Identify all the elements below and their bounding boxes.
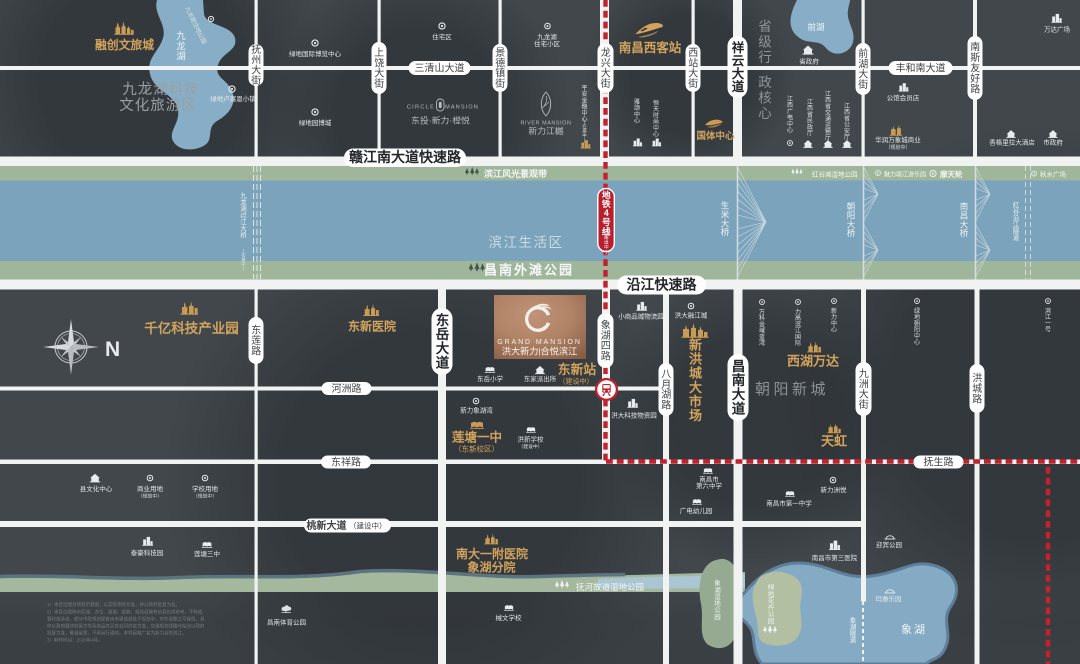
svg-text:东家派出所: 东家派出所 xyxy=(524,374,557,383)
svg-text:九龙湖: 九龙湖 xyxy=(176,30,186,63)
svg-text:力高滨江国际: 力高滨江国际 xyxy=(795,308,801,347)
svg-text:械文学校: 械文学校 xyxy=(496,613,523,622)
svg-text:象湖分院: 象湖分院 xyxy=(467,560,515,575)
svg-text:绿地园博城: 绿地园博城 xyxy=(299,118,332,127)
svg-text:万达广场: 万达广场 xyxy=(1044,25,1071,34)
svg-text:生米大桥: 生米大桥 xyxy=(721,201,730,238)
svg-text:西湖万达: 西湖万达 xyxy=(787,354,839,369)
svg-text:（规划中）: （规划中） xyxy=(885,144,910,151)
svg-text:省级行: 省级行 xyxy=(758,19,772,65)
svg-text:祥云大道: 祥云大道 xyxy=(732,40,745,94)
svg-text:（建设中）: （建设中） xyxy=(559,377,594,386)
svg-text:小商品城物流园: 小商品城物流园 xyxy=(618,312,664,321)
svg-text:象湖湿地公园: 象湖湿地公园 xyxy=(714,578,721,621)
svg-text:3）制作时间：2020年4月。: 3）制作时间：2020年4月。 xyxy=(47,637,103,644)
svg-text:抚生路: 抚生路 xyxy=(924,455,954,468)
svg-text:第六中学: 第六中学 xyxy=(696,481,723,490)
svg-text:东投·新力·樘悦: 东投·新力·樘悦 xyxy=(411,115,470,126)
svg-text:新力中心: 新力中心 xyxy=(831,307,837,334)
svg-text:象湖: 象湖 xyxy=(901,623,927,636)
svg-text:九龙湖科技: 九龙湖科技 xyxy=(122,81,200,98)
svg-text:江西广电中心: 江西广电中心 xyxy=(787,96,793,134)
svg-text:红谷滩湿地公园: 红谷滩湿地公园 xyxy=(812,170,858,179)
svg-text:上饶大街: 上饶大街 xyxy=(374,47,384,90)
svg-text:绿地朝阳中心: 绿地朝阳中心 xyxy=(914,307,920,346)
svg-text:文化旅游区: 文化旅游区 xyxy=(119,97,197,114)
svg-text:商业用地: 商业用地 xyxy=(137,484,164,493)
svg-text:东祥路: 东祥路 xyxy=(331,455,361,468)
svg-text:秋水广场: 秋水广场 xyxy=(1040,170,1067,179)
svg-text:玛雅乐园: 玛雅乐园 xyxy=(876,594,902,603)
svg-text:新力江樾: 新力江樾 xyxy=(528,125,563,136)
svg-text:滨江生活区: 滨江生活区 xyxy=(489,235,564,250)
svg-text:GRAND MANSION: GRAND MANSION xyxy=(497,339,582,346)
svg-text:新洪城大市场: 新洪城大市场 xyxy=(689,337,702,423)
svg-text:体以政府最终批复文件及商品房买卖合同约定为准，交通规划线路与: 体以政府最终批复文件及商品房买卖合同约定为准，交通规划线路与站点以政府 xyxy=(47,623,205,630)
svg-text:华润万象城商业: 华润万象城商业 xyxy=(875,135,921,144)
svg-text:广电幼儿园: 广电幼儿园 xyxy=(680,506,713,515)
svg-text:景德镇街: 景德镇街 xyxy=(495,47,505,90)
svg-text:（规划中）: （规划中） xyxy=(138,493,162,500)
svg-text:MANSION: MANSION xyxy=(445,105,479,111)
svg-text:莲塘一中: 莲塘一中 xyxy=(452,430,502,445)
svg-text:东岳小学: 东岳小学 xyxy=(477,374,504,383)
svg-text:住宅区: 住宅区 xyxy=(432,32,452,41)
svg-text:东莲路: 东莲路 xyxy=(251,324,261,358)
svg-text:千亿科技产业园: 千亿科技产业园 xyxy=(144,320,239,336)
svg-text:要约或承诺，部分市政规划配套尚未建成或处于规划中，存在调整之: 要约或承诺，部分市政规划配套尚未建成或处于规划中，存在调整之可能性，具 xyxy=(47,616,205,623)
svg-text:（建设中）: （建设中） xyxy=(519,443,543,450)
svg-text:绿地国际博览中心: 绿地国际博览中心 xyxy=(289,49,342,58)
svg-text:新力象湖湾: 新力象湖湾 xyxy=(460,406,493,415)
svg-text:象湖隧道: 象湖隧道 xyxy=(850,615,857,644)
svg-text:前湖: 前湖 xyxy=(807,22,824,32)
svg-text:省政府: 省政府 xyxy=(799,57,819,66)
svg-text:洪大科技物资园: 洪大科技物资园 xyxy=(611,411,657,420)
svg-text:（东新校区）: （东新校区） xyxy=(454,444,499,454)
svg-text:滨江风光景观带: 滨江风光景观带 xyxy=(484,168,547,179)
svg-text:东新站: 东新站 xyxy=(558,362,597,377)
svg-text:江西省公安厅: 江西省公安厅 xyxy=(844,103,850,141)
svg-text:2）本区位图所示区域、方位、距离、配套、规划设施等信息仅供参: 2）本区位图所示区域、方位、距离、配套、规划设施等信息仅供参考，不构成 xyxy=(47,609,203,616)
svg-text:县文化中心: 县文化中心 xyxy=(80,484,113,493)
svg-text:昌南体育公园: 昌南体育公园 xyxy=(267,618,306,627)
svg-text:抚州大街: 抚州大街 xyxy=(251,44,261,87)
svg-text:南昌大桥: 南昌大桥 xyxy=(960,202,969,239)
svg-text:恒天时尚中心: 恒天时尚中心 xyxy=(653,99,659,138)
svg-text:前湖大街: 前湖大街 xyxy=(858,47,868,91)
svg-text:迎宾公园: 迎宾公园 xyxy=(876,540,902,549)
svg-text:九龙湖过江大桥: 九龙湖过江大桥 xyxy=(240,191,247,239)
svg-text:南斯友好路: 南斯友好路 xyxy=(970,41,980,96)
svg-text:桃新大道: 桃新大道 xyxy=(307,519,347,532)
svg-text:1）本区位图为项目示意图，以实际测绘为准，并以政府批复为准。: 1）本区位图为项目示意图，以实际测绘为准，并以政府批复为准。 xyxy=(47,601,180,608)
svg-text:龙兴大街: 龙兴大街 xyxy=(601,46,611,90)
svg-text:朝阳大桥: 朝阳大桥 xyxy=(847,202,856,239)
svg-text:抚河故道湿地公园: 抚河故道湿地公园 xyxy=(576,582,644,592)
svg-text:九洲大街: 九洲大街 xyxy=(859,368,869,411)
svg-text:沿江快速路: 沿江快速路 xyxy=(627,277,698,293)
svg-text:魅力赣江游乐园: 魅力赣江游乐园 xyxy=(884,171,926,179)
svg-text:香格里拉大酒店: 香格里拉大酒店 xyxy=(989,138,1035,147)
svg-text:洪城路: 洪城路 xyxy=(972,373,982,406)
svg-text:绿地卢塞恩小镇: 绿地卢塞恩小镇 xyxy=(210,94,256,103)
svg-text:江西省民政厅: 江西省民政厅 xyxy=(807,99,813,137)
svg-text:南大一附医院: 南大一附医院 xyxy=(456,546,528,561)
svg-text:八月湖路: 八月湖路 xyxy=(661,369,671,411)
svg-text:江西省交通运输厅: 江西省交通运输厅 xyxy=(825,91,831,142)
svg-text:三清山大道: 三清山大道 xyxy=(415,62,465,75)
svg-text:学校用地: 学校用地 xyxy=(192,484,219,493)
svg-text:洪新学校: 洪新学校 xyxy=(518,435,545,444)
svg-text:滨江一号: 滨江一号 xyxy=(1045,307,1051,334)
svg-text:新力洲悦: 新力洲悦 xyxy=(821,485,848,494)
svg-text:赣江南大道快速路: 赣江南大道快速路 xyxy=(349,149,462,165)
svg-text:昌南大道: 昌南大道 xyxy=(732,359,746,416)
svg-text:政核心: 政核心 xyxy=(758,75,772,121)
svg-text:CIRCLE: CIRCLE xyxy=(407,105,435,111)
svg-text:融创文旅城: 融创文旅城 xyxy=(95,38,154,52)
svg-text:万科金域蓝湾: 万科金域蓝湾 xyxy=(759,309,765,347)
svg-text:（建设中）: （建设中） xyxy=(349,521,387,531)
svg-text:N: N xyxy=(105,338,120,361)
svg-text:住宅小区: 住宅小区 xyxy=(534,39,561,48)
svg-text:南昌市第一中学: 南昌市第一中学 xyxy=(766,499,812,508)
svg-text:公馆会员店: 公馆会员店 xyxy=(887,93,920,102)
svg-text:批复为准，敬请留意，不再另行通知。本项目推广名为新力合悦滨江: 批复为准，敬请留意，不再另行通知。本项目推广名为新力合悦滨江。 xyxy=(47,630,187,637)
svg-text:朝阳新城: 朝阳新城 xyxy=(755,381,829,398)
svg-text:昌南外滩公园: 昌南外滩公园 xyxy=(484,263,574,278)
svg-text:南昌西客站: 南昌西客站 xyxy=(619,40,682,55)
svg-text:摩天轮: 摩天轮 xyxy=(940,169,963,179)
svg-text:国体中心: 国体中心 xyxy=(696,130,735,142)
svg-text:东岳大道: 东岳大道 xyxy=(436,312,450,370)
svg-text:雅颂中心: 雅颂中心 xyxy=(634,98,640,125)
svg-text:莲塘三中: 莲塘三中 xyxy=(194,549,220,558)
svg-text:象湖四路: 象湖四路 xyxy=(601,319,611,362)
svg-text:洪大新力|合悦滨江: 洪大新力|合悦滨江 xyxy=(502,346,578,357)
svg-text:丰和南大道: 丰和南大道 xyxy=(896,62,946,75)
svg-text:红谷沿江隧道: 红谷沿江隧道 xyxy=(1013,200,1020,242)
svg-text:洪大融江城: 洪大融江城 xyxy=(675,311,708,320)
svg-text:南昌市第三医院: 南昌市第三医院 xyxy=(812,553,858,562)
svg-text:河洲路: 河洲路 xyxy=(332,382,362,395)
svg-text:市政府: 市政府 xyxy=(1043,138,1063,147)
svg-text:九龙湖: 九龙湖 xyxy=(537,32,557,41)
svg-text:天虹: 天虹 xyxy=(821,434,847,449)
svg-text:泰豪科技园: 泰豪科技园 xyxy=(131,548,164,557)
svg-text:绿地花卉公园: 绿地花卉公园 xyxy=(768,582,775,625)
svg-text:东新医院: 东新医院 xyxy=(348,319,396,334)
svg-text:西站大街: 西站大街 xyxy=(688,48,698,90)
svg-text:（规划中）: （规划中） xyxy=(193,493,217,500)
svg-text:平安金融中心: 平安金融中心 xyxy=(581,85,587,123)
